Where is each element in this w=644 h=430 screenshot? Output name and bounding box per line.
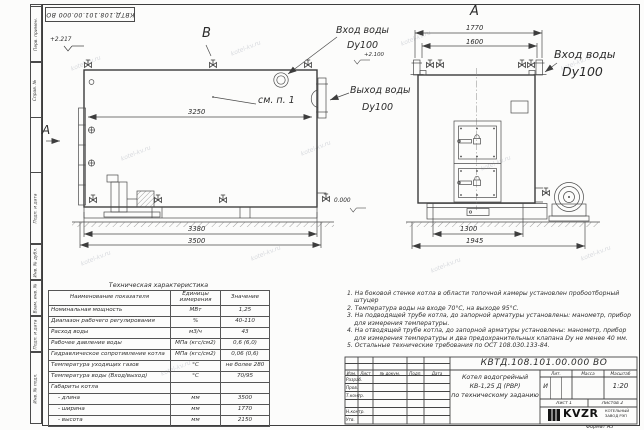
elevation-top-label: +2.217 xyxy=(50,37,71,43)
see-item-note: см. п. 1 xyxy=(258,95,295,106)
tb-header-data: Дата xyxy=(424,371,450,376)
margin-label: Подп. и дата xyxy=(34,319,39,349)
kvzr-logo-subtitle: КОТЕЛЬНЫЙ ЗАВОД РЭП xyxy=(605,409,629,418)
spec-table-title: Техническая характеристика xyxy=(48,281,269,289)
tb-row-utv: Утв. xyxy=(346,417,355,422)
margin-label: Инв. № дубл. xyxy=(34,247,39,277)
col-name-header: Наименование показателя xyxy=(49,291,171,306)
outlet-dn-label: Dy100 xyxy=(362,102,393,113)
table-row: Температура уходящих газов°Сне более 280 xyxy=(49,361,270,372)
col-units-header: Единицы измерения xyxy=(171,291,221,306)
inlet-elevation-label: +2.100 xyxy=(364,52,384,58)
elevation-zero-label: 0.000 xyxy=(334,198,351,204)
table-row: Рабочее давление водыМПа (кгс/см2)0,6 (6… xyxy=(49,339,270,350)
inlet-right-dn-label: Dy100 xyxy=(562,64,603,79)
tb-header-izm: Изм. xyxy=(345,371,358,376)
kvzr-logo-subtitle-line2: ЗАВОД РЭП xyxy=(605,414,629,419)
product-name-line3: по техническому заданию xyxy=(450,392,540,399)
margin-label: Инв. № подл. xyxy=(34,373,39,403)
revision-stamp-number: КВТД.108.101.00.000 ВО xyxy=(46,11,134,18)
margin-box-podp1: Подп. и дата xyxy=(30,172,42,244)
table-row: Температура воды (Вход/выход)°С70/95 xyxy=(49,372,270,383)
col-value-header: Значение xyxy=(221,291,270,306)
table-row: Номинальная мощностьМВт1,25 xyxy=(49,306,270,317)
spec-table-block: Техническая характеристика Наименование … xyxy=(48,281,269,427)
dim-1300: 1300 xyxy=(460,225,477,233)
table-row: Расход водым3/ч43 xyxy=(49,328,270,339)
revision-stamp-top: КВТД.108.101.00.000 ВО xyxy=(45,7,135,22)
scale-value: 1:20 xyxy=(604,382,637,390)
note-item: 5. Остальные технические требования по О… xyxy=(347,342,636,349)
outlet-label: Выход воды xyxy=(350,85,411,96)
view-label-b: B xyxy=(202,26,211,41)
margin-box-inv-podl: Инв. № подл. xyxy=(30,352,42,424)
note-item: 4. На отводящей трубе котла, до запорной… xyxy=(347,327,636,342)
inlet-top-label: Вход воды xyxy=(336,25,389,36)
margin-label: Справ. № xyxy=(34,79,39,100)
lit-value: И xyxy=(540,382,551,390)
doc-number: КВТД.108.101.00.000 ВО xyxy=(452,358,636,368)
kvzr-logo-subtitle-line1: КОТЕЛЬНЫЙ xyxy=(605,409,629,414)
tb-row-nkontr: Н.контр. xyxy=(346,409,365,414)
tb-header-doc: № докум. xyxy=(373,371,407,376)
tb-row-prov: Пров. xyxy=(346,385,358,390)
margin-box-perv: Перв. примен. xyxy=(30,6,42,62)
table-row: - длинамм3500 xyxy=(49,394,270,405)
sheet-label: Лист 1 xyxy=(540,401,588,406)
product-name-line1: Котел водогрейный xyxy=(450,374,540,381)
note-item: 1. На боковой стенке котла в области топ… xyxy=(347,290,636,305)
lit-label: Лит. xyxy=(540,371,572,376)
spec-table: Наименование показателя Единицы измерени… xyxy=(48,290,270,427)
table-row: - ширинамм1770 xyxy=(49,405,270,416)
table-row: Габариты котла xyxy=(49,383,270,394)
kvzr-logo-icon xyxy=(548,409,560,421)
table-row: - высотамм2150 xyxy=(49,416,270,427)
margin-box-podp2: Подп. и дата xyxy=(30,316,42,352)
sheets-label: Листов 2 xyxy=(588,401,637,406)
dim-3500: 3500 xyxy=(188,237,205,245)
dim-3250: 3250 xyxy=(188,108,205,116)
table-row: Диапазон рабочего регулирования%40-110 xyxy=(49,317,270,328)
margin-box-inv-dubl: Инв. № дубл. xyxy=(30,244,42,280)
notes-list: 1. На боковой стенке котла в области топ… xyxy=(347,290,636,349)
format-label: Формат А3 xyxy=(586,425,613,430)
kvzr-logo-text: KVZR xyxy=(563,407,598,420)
scale-label: Масштаб xyxy=(604,371,637,376)
margin-label: Взам. инв. № xyxy=(34,283,39,313)
margin-label: Подп. и дата xyxy=(34,193,39,223)
note-item: 3. На подводящей трубе котла, до запорно… xyxy=(347,312,636,327)
table-header-row: Наименование показателя Единицы измерени… xyxy=(49,291,270,306)
mass-label: Масса xyxy=(572,371,604,376)
tb-header-podp: Подп. xyxy=(407,371,424,376)
margin-box-vzam: Взам. инв. № xyxy=(30,280,42,316)
margin-label: Перв. примен. xyxy=(34,18,39,51)
section-label-a-side: A xyxy=(42,123,50,137)
tb-row-tkontr: Т.контр. xyxy=(346,393,364,398)
tb-header-list: Лист xyxy=(358,371,373,376)
drawing-sheet: kotel-kv.ru kotel-kv.ru kotel-kv.ru kote… xyxy=(0,0,644,430)
view-label-a-front: A xyxy=(470,4,479,19)
dim-1945: 1945 xyxy=(466,237,483,245)
inlet-top-dn-label: Dy100 xyxy=(347,40,378,51)
dim-3380: 3380 xyxy=(188,225,205,233)
dim-1770: 1770 xyxy=(466,24,483,32)
margin-box-sprav: Справ. № xyxy=(30,62,42,118)
inlet-right-label: Вход воды xyxy=(554,48,615,61)
dim-1600: 1600 xyxy=(466,38,483,46)
tb-row-razrab: Разраб. xyxy=(346,377,362,382)
table-row: Гидравлическое сопротивление котлаМПа (к… xyxy=(49,350,270,361)
product-name-line2: КВ-1,25 Д (РВР) xyxy=(450,383,540,390)
